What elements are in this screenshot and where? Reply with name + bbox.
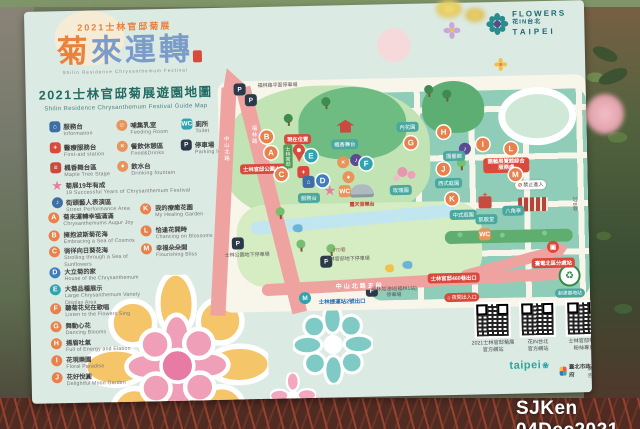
map-label: 禁止進入 — [515, 180, 546, 190]
map-label: 福林加油站[福林1站]停車場 — [371, 286, 417, 299]
parking-icon: P — [234, 83, 246, 95]
church — [478, 196, 491, 208]
zone-letter-badge: J — [52, 372, 63, 383]
zone-letter-badge: I — [51, 355, 62, 366]
toilet-icon: WC — [339, 185, 351, 197]
facility-label-en: Feeding Room — [130, 129, 168, 136]
guide-map-signboard: 2021士林官邸菊展 菊來運轉 Shilin Residence Chrysan… — [24, 0, 592, 404]
facility-label-en: Maple Tree Stage — [64, 171, 110, 178]
map-label: 楓香舞台 — [331, 139, 358, 150]
qr-code-block: 士林官邸菊展 粉絲專頁 — [553, 300, 592, 352]
info-desk-icon: ⌂ — [49, 121, 60, 132]
map-label: 福林路 — [249, 125, 257, 145]
map-label: 中山北路 — [222, 136, 231, 162]
background-yellow-flower — [465, 8, 485, 22]
zone-letter-badge: G — [50, 321, 61, 332]
map-label: 園藝館 — [443, 151, 465, 161]
map-label: 露天音樂台 — [349, 201, 374, 209]
zone-label-en: Full of Energy and Elation — [66, 345, 158, 353]
zone-label-en: Delightful Moon Garden — [67, 379, 159, 387]
map-label: 470巷 — [332, 246, 345, 253]
map-label: 中式庭園 — [450, 209, 477, 220]
legend-facility-item: ⌂ 服務台 Information — [49, 120, 93, 137]
map-label: 八角亭 — [502, 205, 524, 215]
taipei-city-logo: taipei — [509, 359, 549, 372]
legend-facility-item: WC 廁所 Toilet — [181, 118, 209, 135]
map-label: 服務台 — [298, 193, 320, 203]
legend-zone-item: H 揚眉吐氣 Full of Energy and Elation — [51, 336, 158, 354]
dome — [350, 184, 374, 197]
map-label: 士林官邸地下停車場 — [324, 256, 370, 263]
legend-zone-item: I 花現樂園 Floral Paradise — [51, 353, 158, 371]
zone-label-en: Listen to the Flowers Sing — [65, 310, 157, 318]
legend-facility-item: ☺ 哺集乳室 Feeding Room — [116, 119, 168, 136]
qr-code — [565, 300, 592, 337]
feeding-room-icon: ☺ — [116, 120, 127, 131]
map-label: 內花園 — [396, 122, 418, 132]
maple-stage-icon: ≡ — [50, 162, 61, 173]
map-label: 西式庭園 — [435, 178, 462, 189]
facility-label-zh: 服務台 — [63, 120, 92, 131]
service-desk-icon: ⌂ — [302, 176, 314, 188]
map-label: 士林官邸 — [283, 144, 293, 168]
facility-label-en: First-aid station — [64, 151, 105, 158]
bird-blue — [402, 261, 412, 269]
map-label: 園藝展覽館綜合服務處 — [483, 157, 529, 173]
street-performer-icon: ♪ — [52, 197, 63, 208]
map-label: 士林公園地下停車場 — [224, 252, 270, 259]
zone-labels: 聽菊花兒在歌唱 Listen to the Flowers Sing — [65, 301, 157, 318]
zone-letter-badge: B — [49, 230, 60, 241]
parking-icon: P — [181, 139, 192, 150]
zone-label-en: Dancing Blooms — [66, 328, 158, 336]
eco-station-label: 創漾基地站 — [555, 288, 585, 298]
map-label: 臺電北區分處站 — [532, 257, 575, 268]
facility-label-en: Information — [63, 130, 92, 137]
zone-letter-badge: L — [140, 225, 151, 236]
qr-caption-line2: 粉絲專頁 — [554, 344, 592, 352]
background-pink-flower — [586, 94, 624, 134]
facility-labels: 廁所 Toilet — [195, 118, 209, 134]
photo-of-festival-map-sign: 2021士林官邸菊展 菊來運轉 Shilin Residence Chrysan… — [0, 0, 640, 429]
parking-icon: P — [245, 94, 257, 106]
legend-zone-item: J 花好悅圓 Delightful Moon Garden — [52, 370, 159, 388]
parking-icon: P — [232, 237, 244, 249]
zone-letter-badge: F — [50, 303, 61, 314]
zone-letter-badge: M — [141, 243, 152, 254]
toilet-icon: WC — [181, 118, 192, 129]
zone-labels: 揚眉吐氣 Full of Energy and Elation — [66, 336, 158, 353]
legend-facility-item: ♦ 飲水台 Drinking fountain — [117, 160, 175, 177]
zone-label-en: Floral Paradise — [66, 362, 158, 370]
toilet-icon: WC — [479, 228, 491, 240]
facility-labels: 飲水台 Drinking fountain — [131, 160, 175, 177]
zone-labels: 大立菊的家 House of the Chrysanthemum — [64, 265, 156, 282]
photo-watermark: SJKen 04Dec2021 — [516, 398, 640, 429]
legend-zone-item: D 大立菊的家 House of the Chrysanthemum — [49, 265, 156, 283]
drinking-fountain-icon: ♦ — [117, 161, 128, 172]
zone-letter-badge: A — [48, 212, 59, 223]
zone-labels: 舞動心花 Dancing Blooms — [65, 319, 157, 336]
map-label: 378巷 — [570, 196, 578, 211]
qr-code — [519, 301, 556, 338]
zone-labels: 花好悅圓 Delightful Moon Garden — [67, 370, 159, 387]
map-label: 夜間出入口 — [444, 292, 480, 302]
zone-labels: 花現樂園 Floral Paradise — [66, 353, 158, 370]
background-foliage-right — [584, 0, 640, 429]
map-label: 凱歌堂 — [475, 214, 497, 224]
facility-labels: 楓香舞台區 Maple Tree Stage — [64, 161, 110, 178]
facility-labels: 醫療服務台 First-aid station — [64, 141, 105, 158]
facility-label-zh: 廁所 — [195, 118, 209, 128]
qr-code — [474, 302, 511, 339]
background-yellow-flower — [436, 0, 462, 18]
facility-label-en: Toilet — [195, 128, 209, 134]
map-label: 福林路平面停車場 — [254, 82, 300, 89]
legend-facility-item: P 停車場 Parking lot — [181, 139, 223, 156]
first-aid-icon: + — [50, 142, 61, 153]
zone-letter-badge: E — [50, 284, 61, 295]
facility-label-en: Drinking fountain — [131, 170, 175, 177]
zone-letter-badge: K — [140, 203, 151, 214]
food-drinks-icon: × — [117, 141, 128, 152]
zone-letter-badge: H — [51, 338, 62, 349]
facility-labels: 哺集乳室 Feeding Room — [130, 119, 168, 136]
bird-blue — [292, 224, 302, 232]
facility-labels: 服務台 Information — [63, 120, 93, 137]
eco-station-badge: ♻ 創漾基地站 — [554, 264, 585, 298]
facility-labels: 餐飲休憩區 Food&Drinks — [131, 140, 165, 157]
map-label: 士林官邸460巷出口 — [428, 272, 480, 283]
facility-label-zh: 餐飲休憩區 — [131, 140, 164, 151]
qr-caption: 士林官邸菊展 粉絲專頁 — [554, 338, 592, 352]
map-label: 現在位置 — [284, 134, 311, 145]
star-icon: ★ — [51, 180, 62, 191]
bird-yellow — [385, 264, 394, 272]
facility-labels: 菊展19年有成 19 Successful Years of Chrysanth… — [65, 177, 190, 196]
legend-facility-item: ≡ 楓香舞台區 Maple Tree Stage — [50, 161, 110, 178]
zone-letter-badge: C — [49, 246, 60, 257]
map-label: 玫瑰園 — [390, 185, 412, 195]
legend-facility-item: ★ 菊展19年有成 19 Successful Years of Chrysan… — [51, 177, 190, 196]
map-label: 士林捷運站2號出口 — [318, 297, 365, 306]
ad-label: 廣告 — [587, 365, 592, 379]
facility-label-en: Food&Drinks — [131, 150, 164, 157]
legend-facility-item: + 醫療服務台 First-aid station — [50, 141, 105, 158]
legend-zone-item: F 聽菊花兒在歌唱 Listen to the Flowers Sing — [50, 301, 157, 319]
legend-zone-item: G 舞動心花 Dancing Blooms — [50, 319, 157, 337]
zone-letter-badge: D — [49, 267, 60, 278]
legend-facility-item: × 餐飲休憩區 Food&Drinks — [117, 140, 165, 157]
gov-emblem-icon — [559, 366, 567, 375]
zone-label-en: House of the Chrysanthemum — [64, 274, 156, 282]
